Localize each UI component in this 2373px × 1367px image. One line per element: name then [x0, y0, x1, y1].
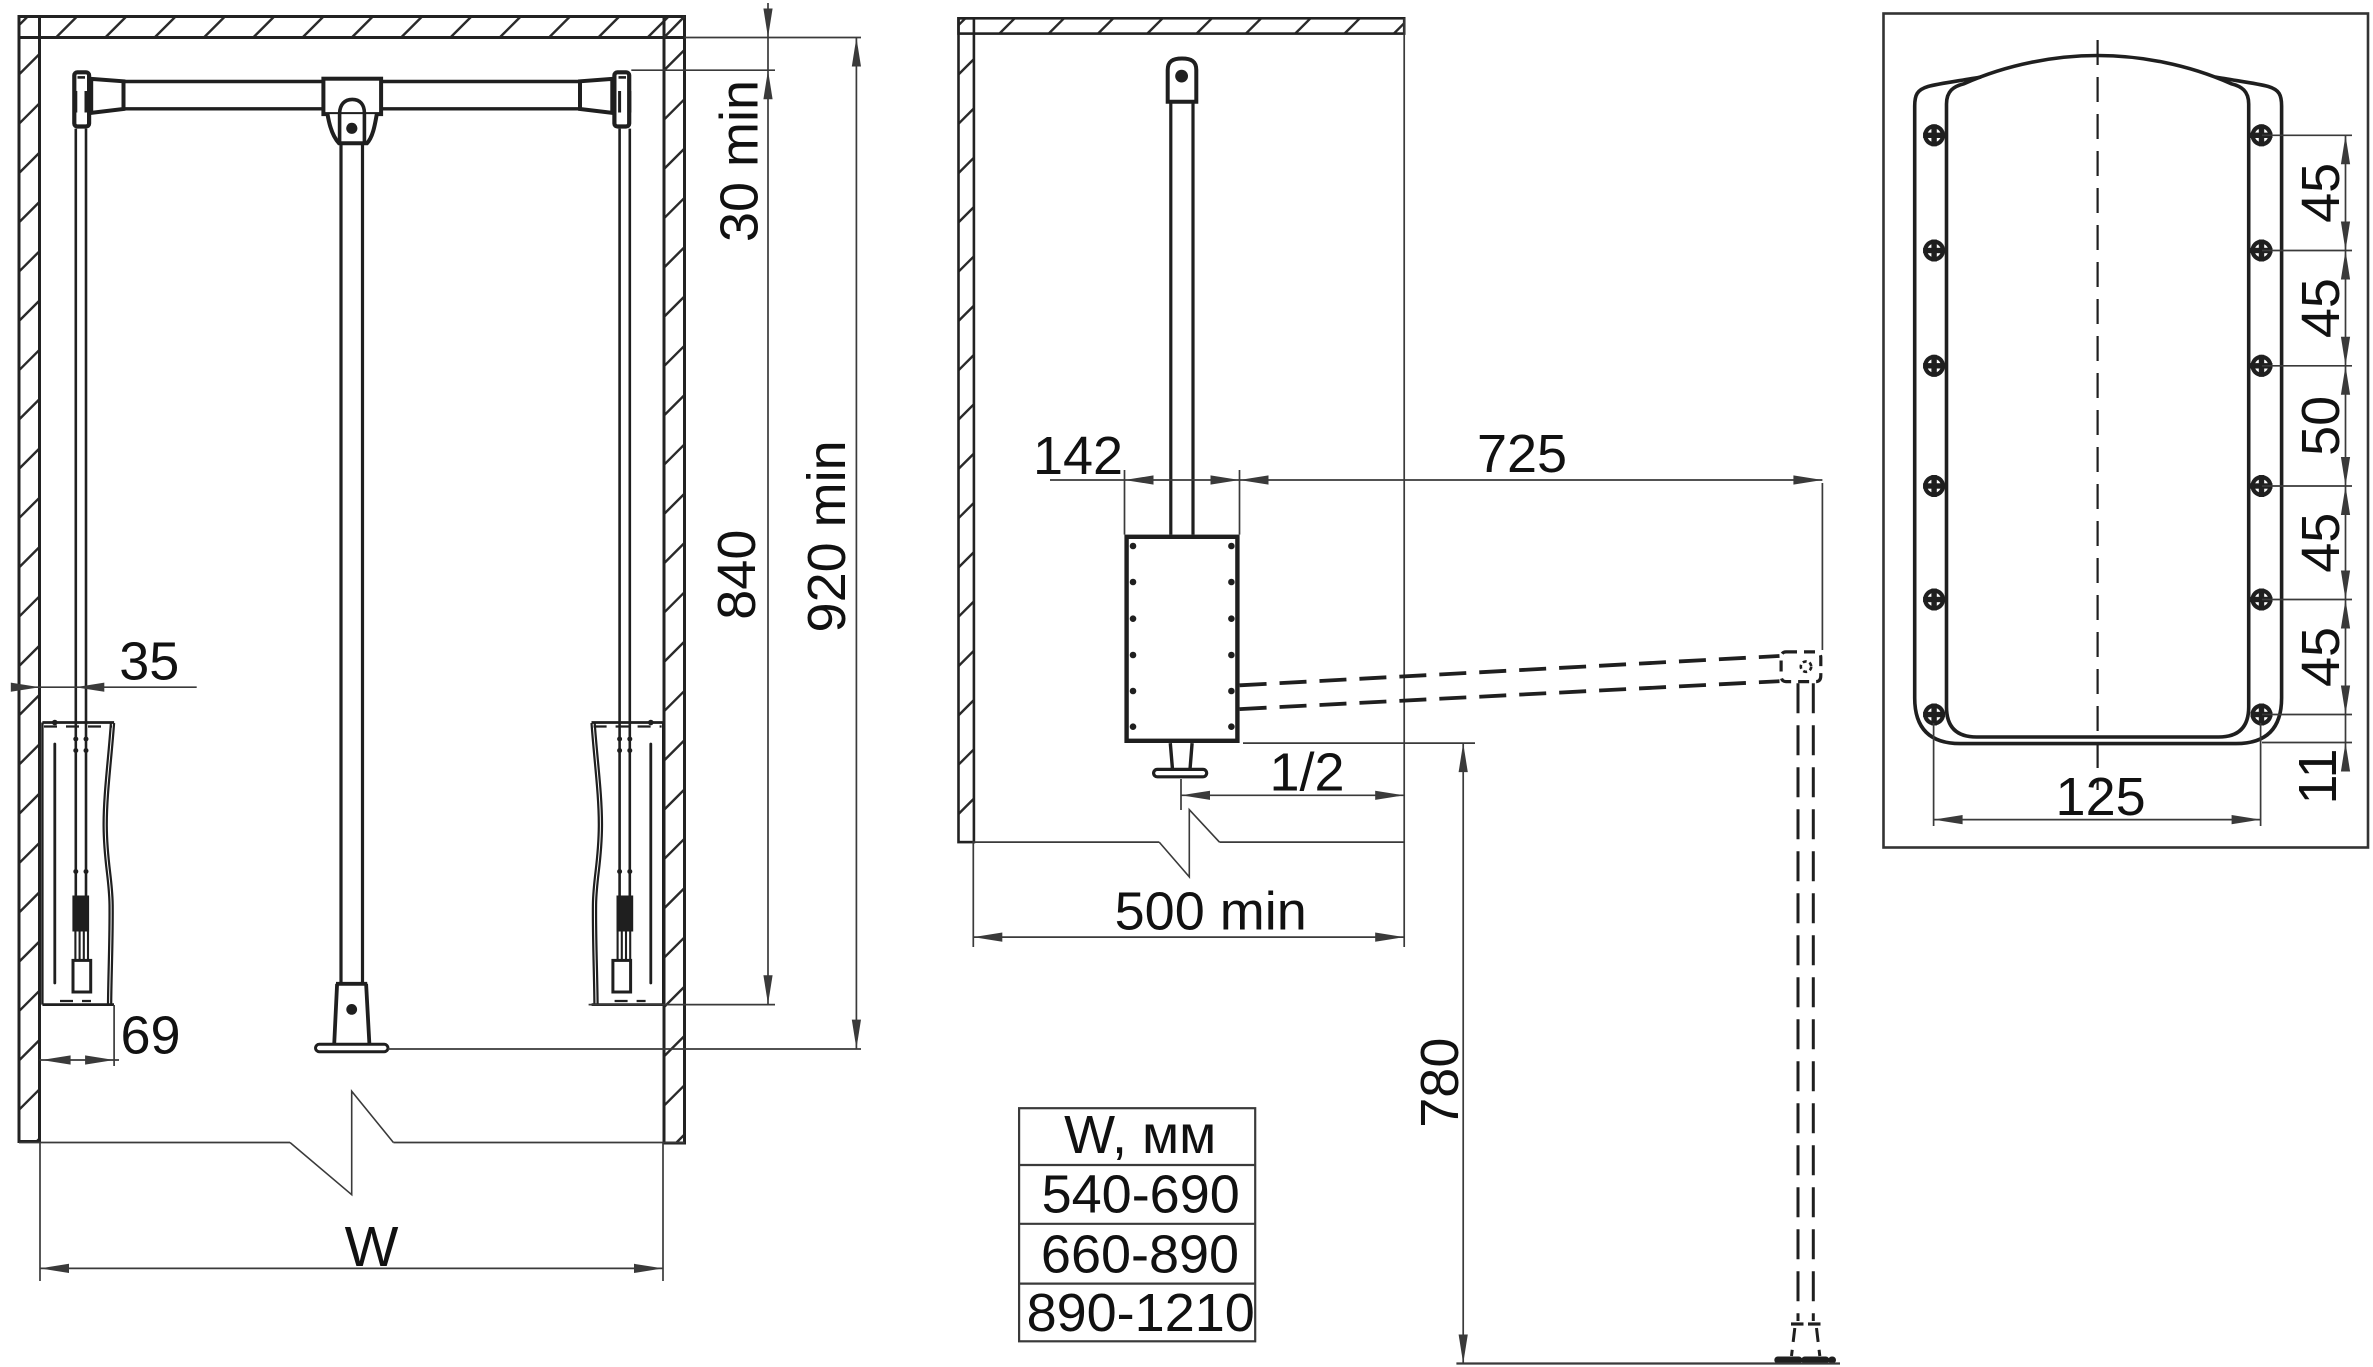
svg-text:890-1210: 890-1210: [1027, 1283, 1255, 1343]
svg-text:920 min: 920 min: [797, 440, 857, 632]
svg-text:45: 45: [2291, 163, 2351, 223]
svg-text:W, мм: W, мм: [1064, 1105, 1216, 1165]
svg-text:35: 35: [119, 632, 179, 692]
svg-text:69: 69: [120, 1006, 180, 1066]
svg-text:45: 45: [2291, 513, 2351, 573]
svg-text:780: 780: [1410, 1038, 1470, 1128]
svg-text:500 min: 500 min: [1115, 882, 1307, 942]
svg-text:50: 50: [2291, 396, 2351, 456]
svg-text:11: 11: [2288, 748, 2348, 804]
svg-text:45: 45: [2291, 278, 2351, 338]
svg-text:1/2: 1/2: [1269, 743, 1344, 803]
svg-text:W: W: [345, 1215, 399, 1279]
svg-text:540-690: 540-690: [1042, 1165, 1240, 1225]
svg-text:30 min: 30 min: [710, 80, 770, 242]
svg-text:660-890: 660-890: [1041, 1224, 1239, 1284]
svg-text:45: 45: [2291, 627, 2351, 687]
svg-text:840: 840: [707, 530, 767, 620]
svg-text:142: 142: [1033, 426, 1123, 486]
svg-text:125: 125: [2056, 767, 2146, 827]
svg-text:725: 725: [1477, 424, 1567, 484]
